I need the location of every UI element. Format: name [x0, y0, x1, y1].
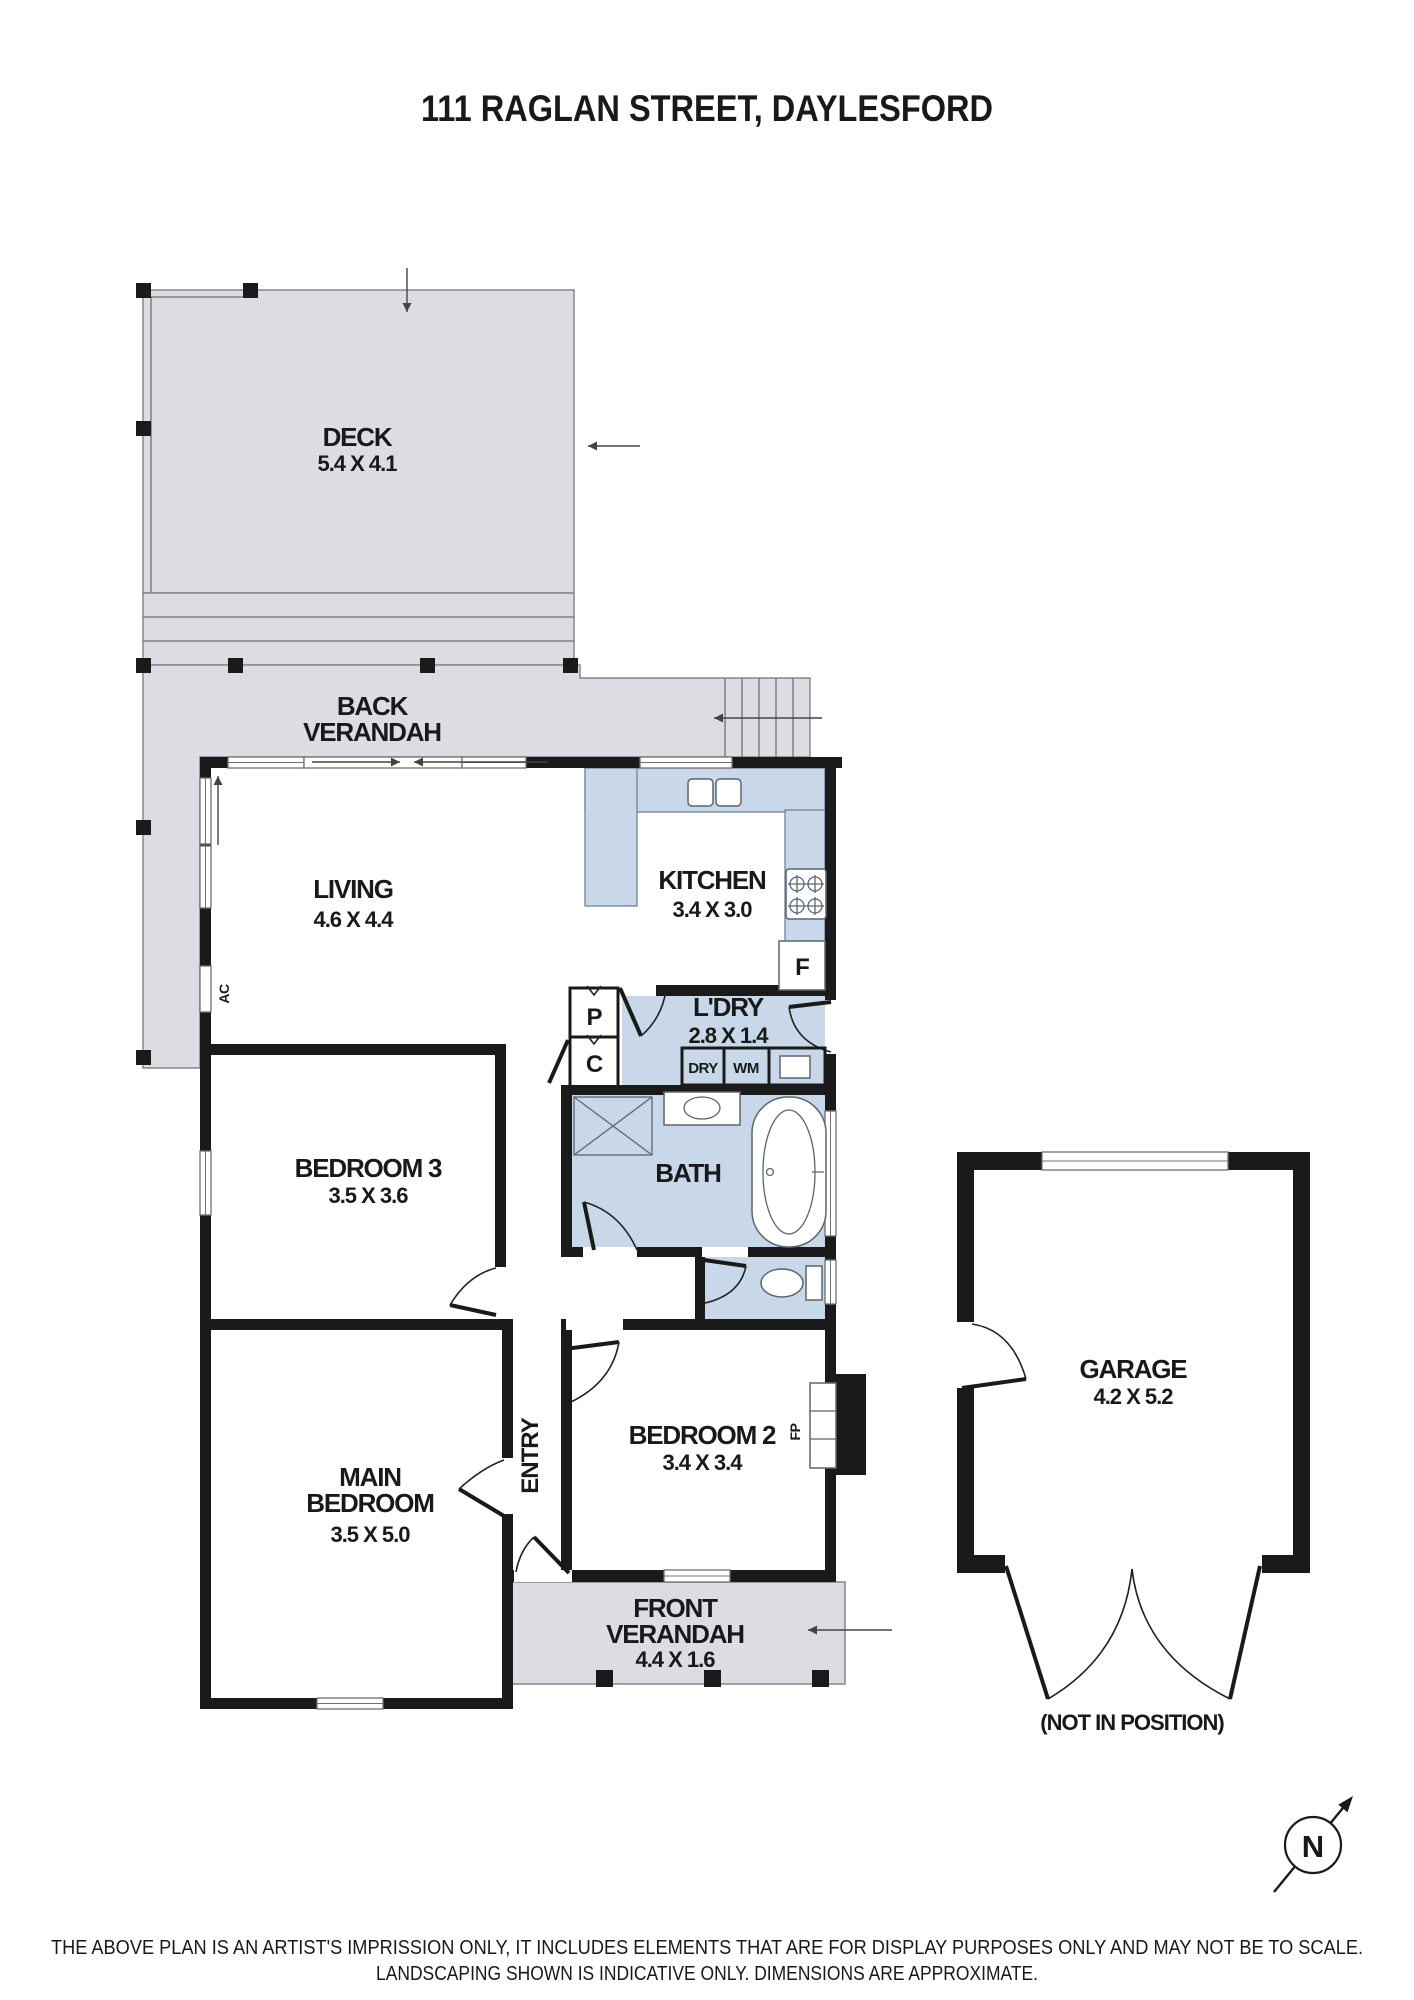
laundry-dims: 2.8 X 1.4 [688, 1023, 769, 1048]
window [664, 1570, 730, 1582]
deck-label: DECK [323, 422, 393, 452]
stove-icon [786, 869, 826, 919]
kitchen-dims: 3.4 X 3.0 [672, 897, 752, 922]
window [1042, 1152, 1228, 1170]
floor-plan-page: 111 RAGLAN STREET, DAYLESFORD DECK 5.4 X… [0, 0, 1414, 2000]
window [200, 1151, 211, 1215]
cupboard-label: C [586, 1051, 603, 1078]
bedroom3-dims: 3.5 X 3.6 [328, 1183, 408, 1208]
toilet-icon [761, 1266, 822, 1300]
cupboard-door [549, 1040, 568, 1083]
bedroom3-door [450, 1268, 496, 1315]
bedroom2-dims: 3.4 X 3.4 [662, 1450, 743, 1475]
garage-double-doors [1006, 1566, 1260, 1699]
window [200, 778, 211, 844]
north-compass-icon: N [1274, 1796, 1353, 1892]
window [825, 1260, 836, 1304]
fireplace-hearth [810, 1383, 836, 1468]
ac-label: AC [216, 984, 232, 1004]
main-bedroom-door [459, 1460, 504, 1516]
page-title: 111 RAGLAN STREET, DAYLESFORD [421, 88, 993, 129]
fireplace-label: FP [787, 1423, 803, 1440]
north-label: N [1302, 1829, 1324, 1864]
front-verandah-label-2: VERANDAH [606, 1619, 744, 1649]
bedroom2-label: BEDROOM 2 [629, 1420, 776, 1450]
deck-dims: 5.4 X 4.1 [317, 451, 397, 476]
washer-label: WM [733, 1060, 759, 1077]
fridge-label: F [795, 954, 809, 981]
main-bedroom-dims: 3.5 X 5.0 [330, 1522, 410, 1547]
window [317, 1698, 383, 1709]
garage-position-note: (NOT IN POSITION) [1040, 1710, 1224, 1735]
living-label: LIVING [313, 874, 392, 904]
living-dims: 4.6 X 4.4 [313, 907, 394, 932]
ac-unit [200, 966, 211, 1012]
vanity-icon [664, 1092, 740, 1125]
kitchen-label: KITCHEN [658, 865, 766, 895]
garage-side-door [962, 1324, 1026, 1388]
bathtub-icon [752, 1097, 826, 1247]
entry-label: ENTRY [517, 1417, 544, 1493]
bedroom3-label: BEDROOM 3 [295, 1153, 442, 1183]
laundry-label: L'DRY [693, 992, 764, 1022]
kitchen-counter-left [585, 768, 637, 906]
pantry-label: P [586, 1004, 602, 1031]
garage-label: GARAGE [1080, 1354, 1188, 1384]
main-bedroom-label-2: BEDROOM [306, 1488, 433, 1518]
dryer-label: DRY [688, 1060, 718, 1077]
disclaimer-line-2: LANDSCAPING SHOWN IS INDICATIVE ONLY. DI… [376, 1962, 1038, 1985]
window [640, 757, 732, 768]
fireplace-box [836, 1374, 866, 1475]
deck-steps [143, 593, 574, 665]
disclaimer-line-1: THE ABOVE PLAN IS AN ARTIST'S IMPRISSION… [51, 1936, 1363, 1959]
window [200, 846, 211, 908]
bedroom2-door [565, 1342, 619, 1402]
front-verandah-dims: 4.4 X 1.6 [635, 1647, 715, 1672]
back-verandah-label-2: VERANDAH [303, 717, 441, 747]
window [228, 757, 304, 768]
garage-dims: 4.2 X 5.2 [1093, 1384, 1173, 1409]
bath-label: BATH [655, 1158, 721, 1188]
laundry-trough [780, 1056, 810, 1078]
floor-plan: 111 RAGLAN STREET, DAYLESFORD DECK 5.4 X… [0, 0, 1414, 2000]
